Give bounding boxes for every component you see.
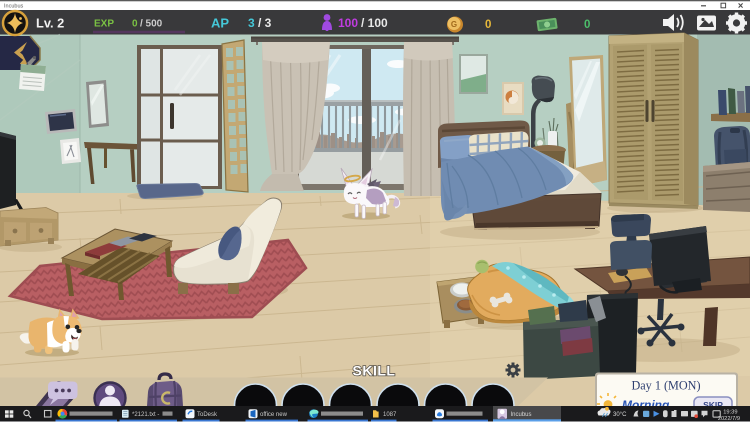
svg-text:Incubus: Incubus <box>511 412 532 418</box>
svg-text:SKILL: SKILL <box>353 363 396 379</box>
svg-text:/ 100: / 100 <box>361 16 388 30</box>
svg-text:Day 1 (MON): Day 1 (MON) <box>631 379 700 393</box>
svg-text:/ 3: / 3 <box>258 16 272 30</box>
svg-text:AP: AP <box>211 16 229 31</box>
svg-text:3: 3 <box>248 16 255 30</box>
svg-text:30°C: 30°C <box>613 412 627 418</box>
svg-text:ToDesk: ToDesk <box>197 412 218 418</box>
svg-text:office new: office new <box>260 412 288 418</box>
svg-text:0: 0 <box>584 19 590 31</box>
svg-text:0: 0 <box>485 19 491 31</box>
svg-text:1087: 1087 <box>383 412 397 418</box>
svg-text:/ 500: / 500 <box>140 19 163 30</box>
svg-text:100: 100 <box>338 16 358 30</box>
svg-text:Incubus: Incubus <box>4 3 24 9</box>
svg-text:*2121.txt -: *2121.txt - <box>132 412 159 418</box>
svg-text:0: 0 <box>132 19 138 30</box>
svg-text:Lv. 2: Lv. 2 <box>36 16 64 31</box>
svg-text:19:39: 19:39 <box>723 410 737 416</box>
svg-text:EXP: EXP <box>94 19 114 30</box>
svg-text:G: G <box>451 20 457 29</box>
svg-text:2022/7/9: 2022/7/9 <box>718 416 740 422</box>
